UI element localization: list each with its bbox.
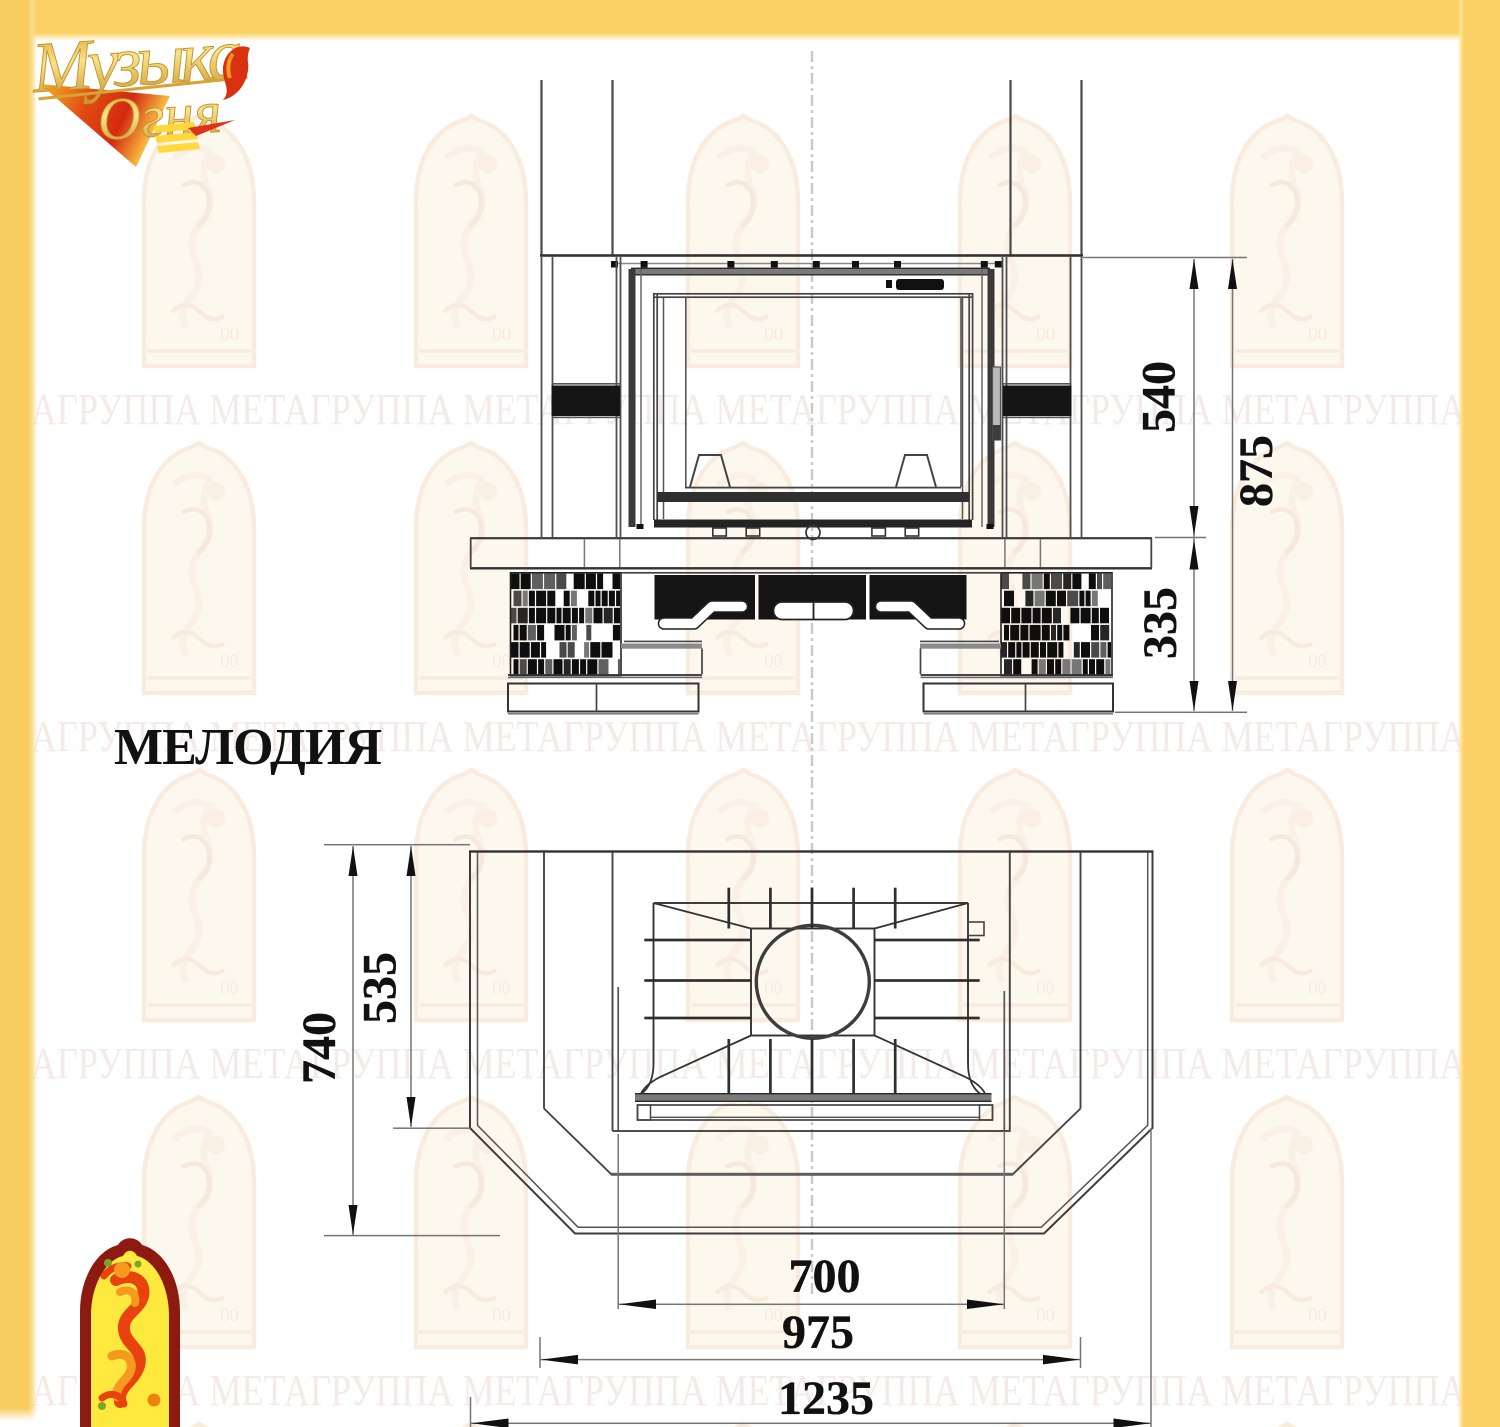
svg-text:740: 740: [293, 1012, 346, 1084]
svg-text:700: 700: [789, 1250, 861, 1303]
svg-text:535: 535: [354, 952, 407, 1024]
svg-text:540: 540: [1133, 361, 1186, 433]
svg-text:МЕЛОДИЯ: МЕЛОДИЯ: [114, 719, 382, 776]
svg-text:875: 875: [1230, 435, 1283, 507]
svg-text:1235: 1235: [778, 1372, 874, 1425]
svg-text:975: 975: [782, 1306, 854, 1359]
svg-text:335: 335: [1134, 587, 1187, 659]
